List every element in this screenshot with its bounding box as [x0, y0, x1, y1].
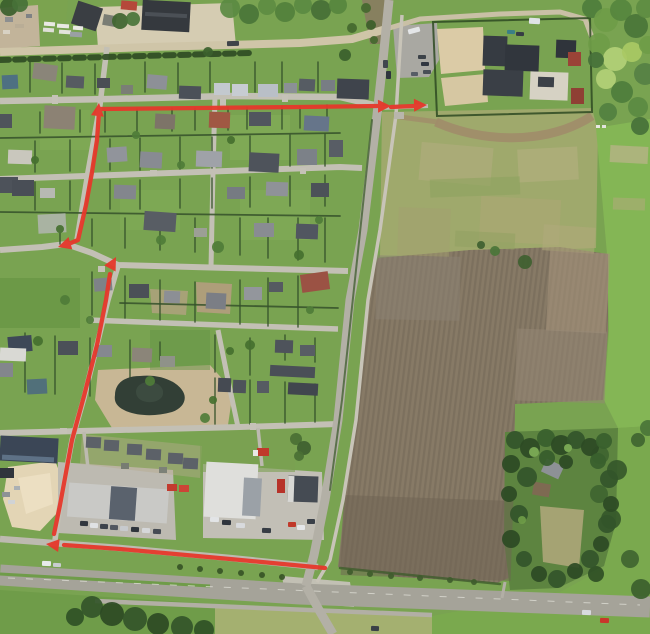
car	[131, 527, 139, 532]
car	[307, 519, 315, 524]
red-car	[288, 522, 296, 527]
tree	[66, 608, 84, 626]
red-truck	[167, 484, 177, 491]
car	[582, 610, 591, 615]
tree	[599, 103, 617, 121]
house	[164, 291, 181, 304]
house-corner-dark	[337, 78, 370, 99]
tree	[600, 470, 618, 488]
garden-tree	[132, 131, 140, 139]
house	[232, 84, 248, 96]
cabin	[86, 437, 102, 449]
car	[142, 528, 150, 533]
tree	[631, 117, 649, 135]
house	[160, 356, 175, 367]
driveway	[98, 266, 105, 272]
house	[66, 76, 85, 89]
aerial-map-screenshot	[0, 0, 650, 634]
field-bush	[447, 577, 453, 583]
school-red-building	[571, 88, 584, 104]
route-top-leg-end	[391, 106, 414, 107]
verge-bush	[197, 566, 203, 572]
red-car	[600, 618, 609, 623]
house	[155, 113, 176, 129]
school-sand-2	[441, 74, 488, 106]
commercial-building-dark-edge	[288, 476, 295, 502]
car	[297, 525, 305, 530]
house	[2, 75, 19, 90]
field-edge-bush	[490, 246, 500, 256]
garden-tree	[33, 336, 43, 346]
white-tank	[44, 22, 55, 27]
tree	[590, 453, 606, 469]
hay-bale	[602, 125, 606, 128]
school-red-building	[568, 52, 581, 66]
garden-tree	[31, 156, 39, 164]
car	[210, 517, 219, 522]
tree	[517, 467, 537, 487]
farm-red-shed	[121, 0, 138, 10]
car	[110, 525, 118, 530]
cabin-shed	[121, 463, 129, 469]
house-under-construction	[206, 292, 227, 309]
house	[129, 284, 149, 298]
east-field-patch	[610, 145, 649, 164]
house	[257, 381, 269, 393]
tree	[502, 455, 520, 473]
house	[218, 378, 231, 392]
aerial-photo-map	[0, 0, 650, 634]
garden-tree	[156, 235, 166, 245]
garden-tree	[145, 376, 155, 386]
driveway	[282, 95, 288, 102]
car	[371, 626, 379, 631]
tree	[239, 4, 259, 24]
car	[90, 523, 98, 528]
field-edge-tree	[518, 255, 532, 269]
field-bush	[367, 571, 373, 577]
industrial-annex	[0, 468, 14, 478]
field-tone-dark	[341, 495, 514, 581]
house	[107, 146, 128, 162]
garden-tree	[212, 241, 224, 253]
car	[236, 523, 245, 528]
tree	[588, 566, 604, 582]
cabin	[183, 458, 199, 470]
house	[132, 347, 153, 362]
tree-top-light	[529, 447, 539, 457]
tree	[81, 596, 103, 618]
tree-top-light	[518, 516, 526, 524]
house	[244, 287, 262, 300]
house	[12, 180, 34, 196]
house	[146, 74, 167, 90]
house	[179, 86, 201, 100]
garden-tree	[294, 250, 304, 260]
store-roof-dark-section	[109, 486, 137, 521]
house	[249, 112, 271, 126]
car	[100, 524, 108, 529]
tree	[548, 570, 566, 588]
red-container	[257, 448, 269, 456]
verge-bush	[238, 570, 244, 576]
tree	[588, 52, 604, 68]
shed	[194, 228, 207, 237]
bush	[370, 36, 378, 44]
house	[196, 151, 223, 168]
red-semi-trailer	[277, 479, 285, 493]
meadow-patch	[397, 207, 451, 257]
house	[296, 224, 319, 240]
field-bush	[417, 575, 423, 581]
verge-bush	[259, 572, 265, 578]
pond-bush	[209, 396, 217, 404]
tree	[611, 81, 633, 103]
tree	[621, 550, 639, 568]
school-solar-panels	[538, 77, 554, 88]
car	[423, 70, 431, 74]
field-tone-gray	[375, 255, 460, 320]
house	[266, 182, 288, 197]
tree	[628, 97, 648, 117]
garden-tree	[86, 316, 94, 324]
house	[0, 363, 13, 377]
machinery	[14, 486, 20, 490]
yard-debris	[5, 17, 13, 22]
white-tank	[59, 30, 71, 35]
house	[300, 345, 315, 356]
tree	[347, 23, 357, 33]
field-edge-bush	[477, 241, 485, 249]
yard-debris	[26, 14, 32, 18]
tree	[502, 530, 520, 548]
garden-tree	[226, 347, 234, 355]
house	[58, 341, 78, 355]
tree	[598, 515, 616, 533]
tree	[567, 563, 583, 579]
hay-bale	[596, 125, 600, 128]
car	[516, 32, 524, 36]
house	[214, 83, 230, 95]
field-bush	[388, 573, 394, 579]
tree	[275, 2, 295, 22]
garden-tree	[177, 161, 185, 169]
bus-stop-pad	[394, 112, 404, 119]
verge-bush	[177, 564, 183, 570]
cabin-shed	[159, 467, 167, 473]
school-block	[505, 44, 540, 71]
house	[275, 340, 293, 354]
car	[418, 55, 426, 59]
house	[233, 380, 246, 393]
white-tank	[73, 26, 83, 31]
house	[304, 115, 330, 131]
verge-bush	[217, 568, 223, 574]
driveway	[52, 95, 58, 104]
white-van	[529, 18, 540, 25]
house	[8, 150, 32, 165]
woodland-clearing	[540, 506, 584, 568]
field-bush	[347, 569, 353, 575]
house	[227, 187, 245, 199]
car	[153, 529, 161, 534]
verge-bush	[279, 574, 285, 580]
tree	[593, 536, 609, 552]
house	[329, 140, 343, 157]
cabin	[104, 440, 120, 452]
house-teal-roof	[27, 378, 48, 394]
tree	[516, 551, 532, 567]
rowhouse-long	[288, 382, 319, 396]
machinery	[2, 492, 10, 497]
house	[114, 185, 136, 200]
east-field-patch	[613, 197, 645, 210]
white-tank	[43, 28, 54, 33]
field-tone-mid	[515, 328, 607, 403]
driveway	[300, 168, 306, 174]
truck	[227, 41, 239, 46]
house	[43, 105, 75, 130]
trailer	[53, 563, 61, 567]
tree	[596, 433, 612, 449]
cabin	[168, 453, 184, 465]
tree	[603, 496, 619, 512]
cabin	[146, 449, 162, 461]
tree	[147, 613, 169, 634]
garden-tree	[306, 306, 314, 314]
field-tone-light	[546, 250, 610, 333]
tree-top-light	[564, 444, 572, 452]
house	[299, 79, 316, 92]
machinery	[8, 500, 15, 504]
house	[321, 80, 335, 91]
meadow-patch	[517, 146, 579, 182]
tree	[100, 602, 124, 626]
car	[411, 72, 418, 76]
school-block	[482, 36, 507, 67]
tree	[581, 550, 599, 568]
car	[120, 526, 128, 531]
commercial-building-gray-wing	[242, 478, 262, 517]
tree	[539, 450, 555, 466]
meadow-patch	[542, 224, 596, 254]
tree	[126, 12, 140, 26]
driveway	[250, 423, 256, 430]
meadow-streak	[430, 176, 521, 197]
meadow-streak	[455, 230, 516, 249]
tree	[501, 486, 517, 502]
school-block	[483, 69, 524, 96]
car	[80, 521, 88, 526]
house	[97, 78, 110, 88]
lawn-dark	[150, 330, 210, 370]
rowhouse-long	[270, 365, 316, 378]
house	[269, 282, 283, 292]
car-with-trailer	[42, 561, 51, 566]
garden-tree	[56, 225, 64, 233]
yard-debris	[15, 24, 24, 28]
house	[121, 85, 133, 94]
garden-tree	[245, 340, 255, 350]
garden-tree	[315, 216, 323, 224]
house	[258, 84, 278, 97]
house	[297, 149, 317, 165]
tree	[559, 455, 573, 469]
garage	[40, 188, 55, 198]
bush	[366, 20, 376, 30]
car	[262, 528, 271, 533]
gray-trailer	[70, 32, 82, 38]
car	[507, 30, 515, 34]
driveway	[150, 170, 157, 176]
house	[284, 83, 297, 93]
house	[311, 183, 329, 197]
car	[383, 60, 388, 68]
route-top-leg	[100, 106, 377, 109]
white-tank	[57, 24, 69, 29]
scrub-bush	[294, 451, 304, 461]
garden-tree	[227, 136, 235, 144]
cabin	[127, 444, 143, 456]
tree	[311, 0, 331, 20]
yard-debris	[3, 30, 10, 34]
house	[0, 114, 12, 128]
pond-bush	[200, 413, 210, 423]
white-industrial-building	[0, 348, 26, 362]
car	[222, 520, 231, 525]
house	[249, 152, 280, 173]
tree	[123, 607, 147, 631]
field-bush	[471, 579, 477, 585]
driveway	[60, 428, 67, 434]
car	[386, 71, 391, 79]
house	[143, 211, 176, 232]
house	[32, 62, 58, 81]
house	[254, 223, 274, 237]
tree	[531, 566, 547, 582]
bush	[361, 3, 371, 13]
tree	[631, 433, 645, 447]
white-truck-cab	[253, 450, 258, 456]
house	[140, 151, 163, 168]
school-sand-1	[437, 27, 485, 74]
garden-tree	[203, 47, 213, 57]
garden-tree	[60, 295, 70, 305]
red-truck	[179, 485, 189, 492]
car	[421, 62, 429, 66]
tree	[339, 49, 351, 61]
tree	[112, 13, 128, 29]
house-red-roof	[209, 112, 231, 129]
